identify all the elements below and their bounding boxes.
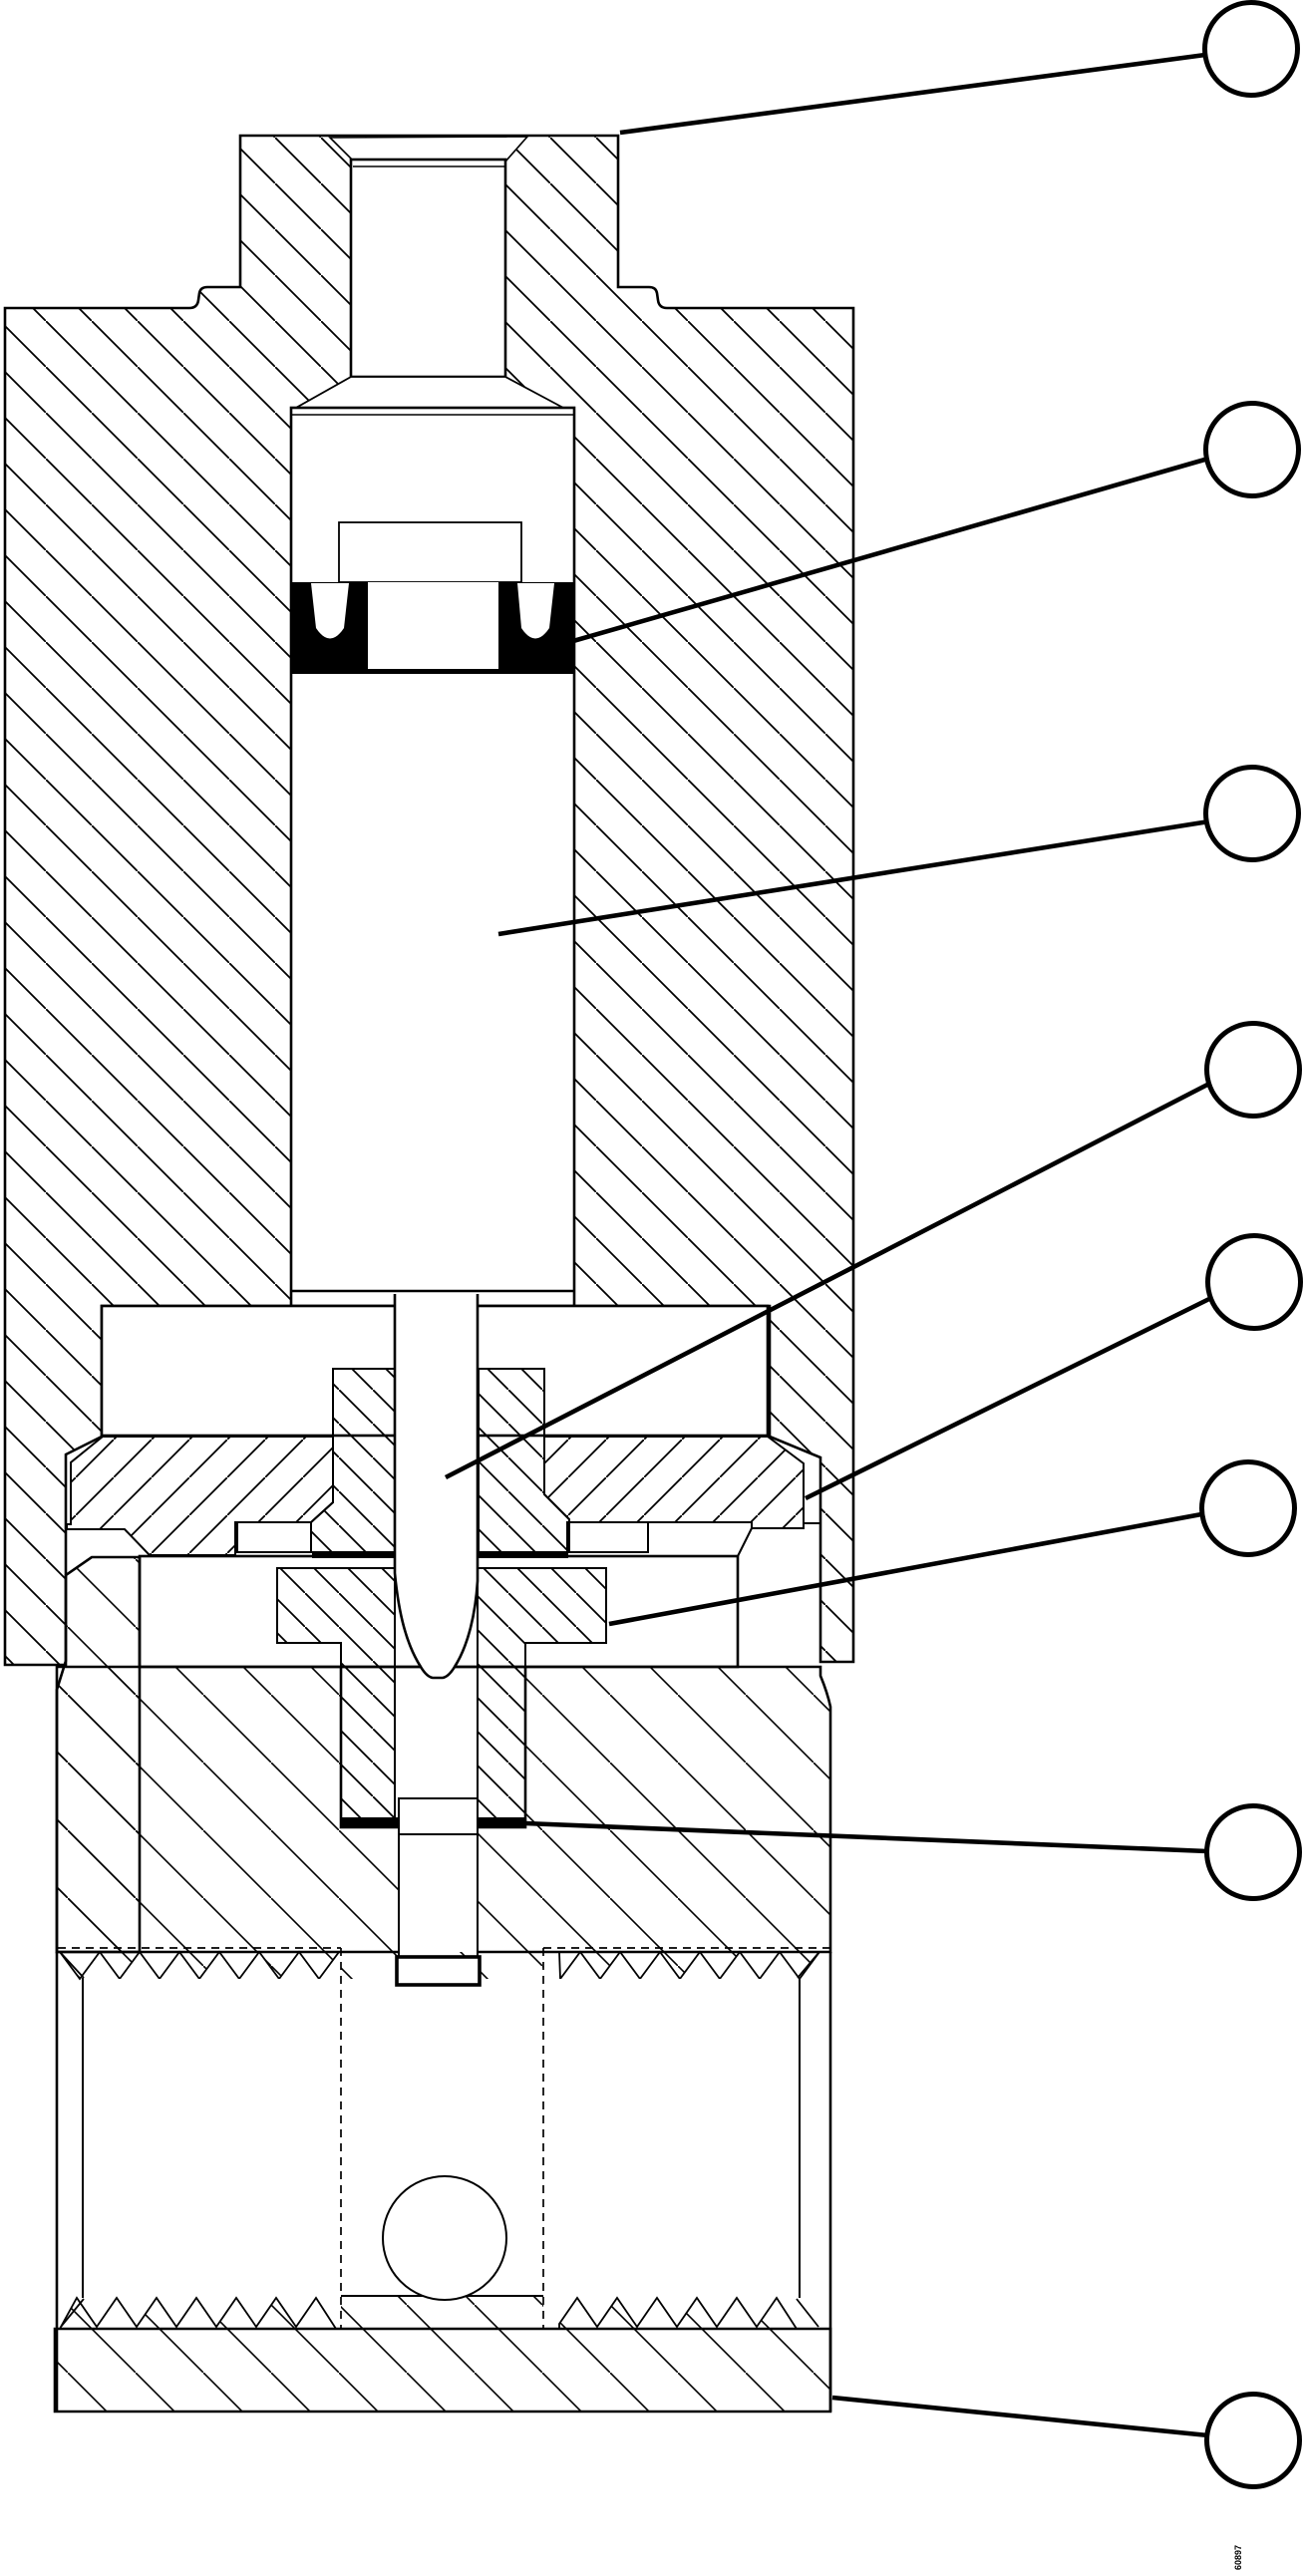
svg-text:60897: 60897 bbox=[1233, 2545, 1243, 2570]
